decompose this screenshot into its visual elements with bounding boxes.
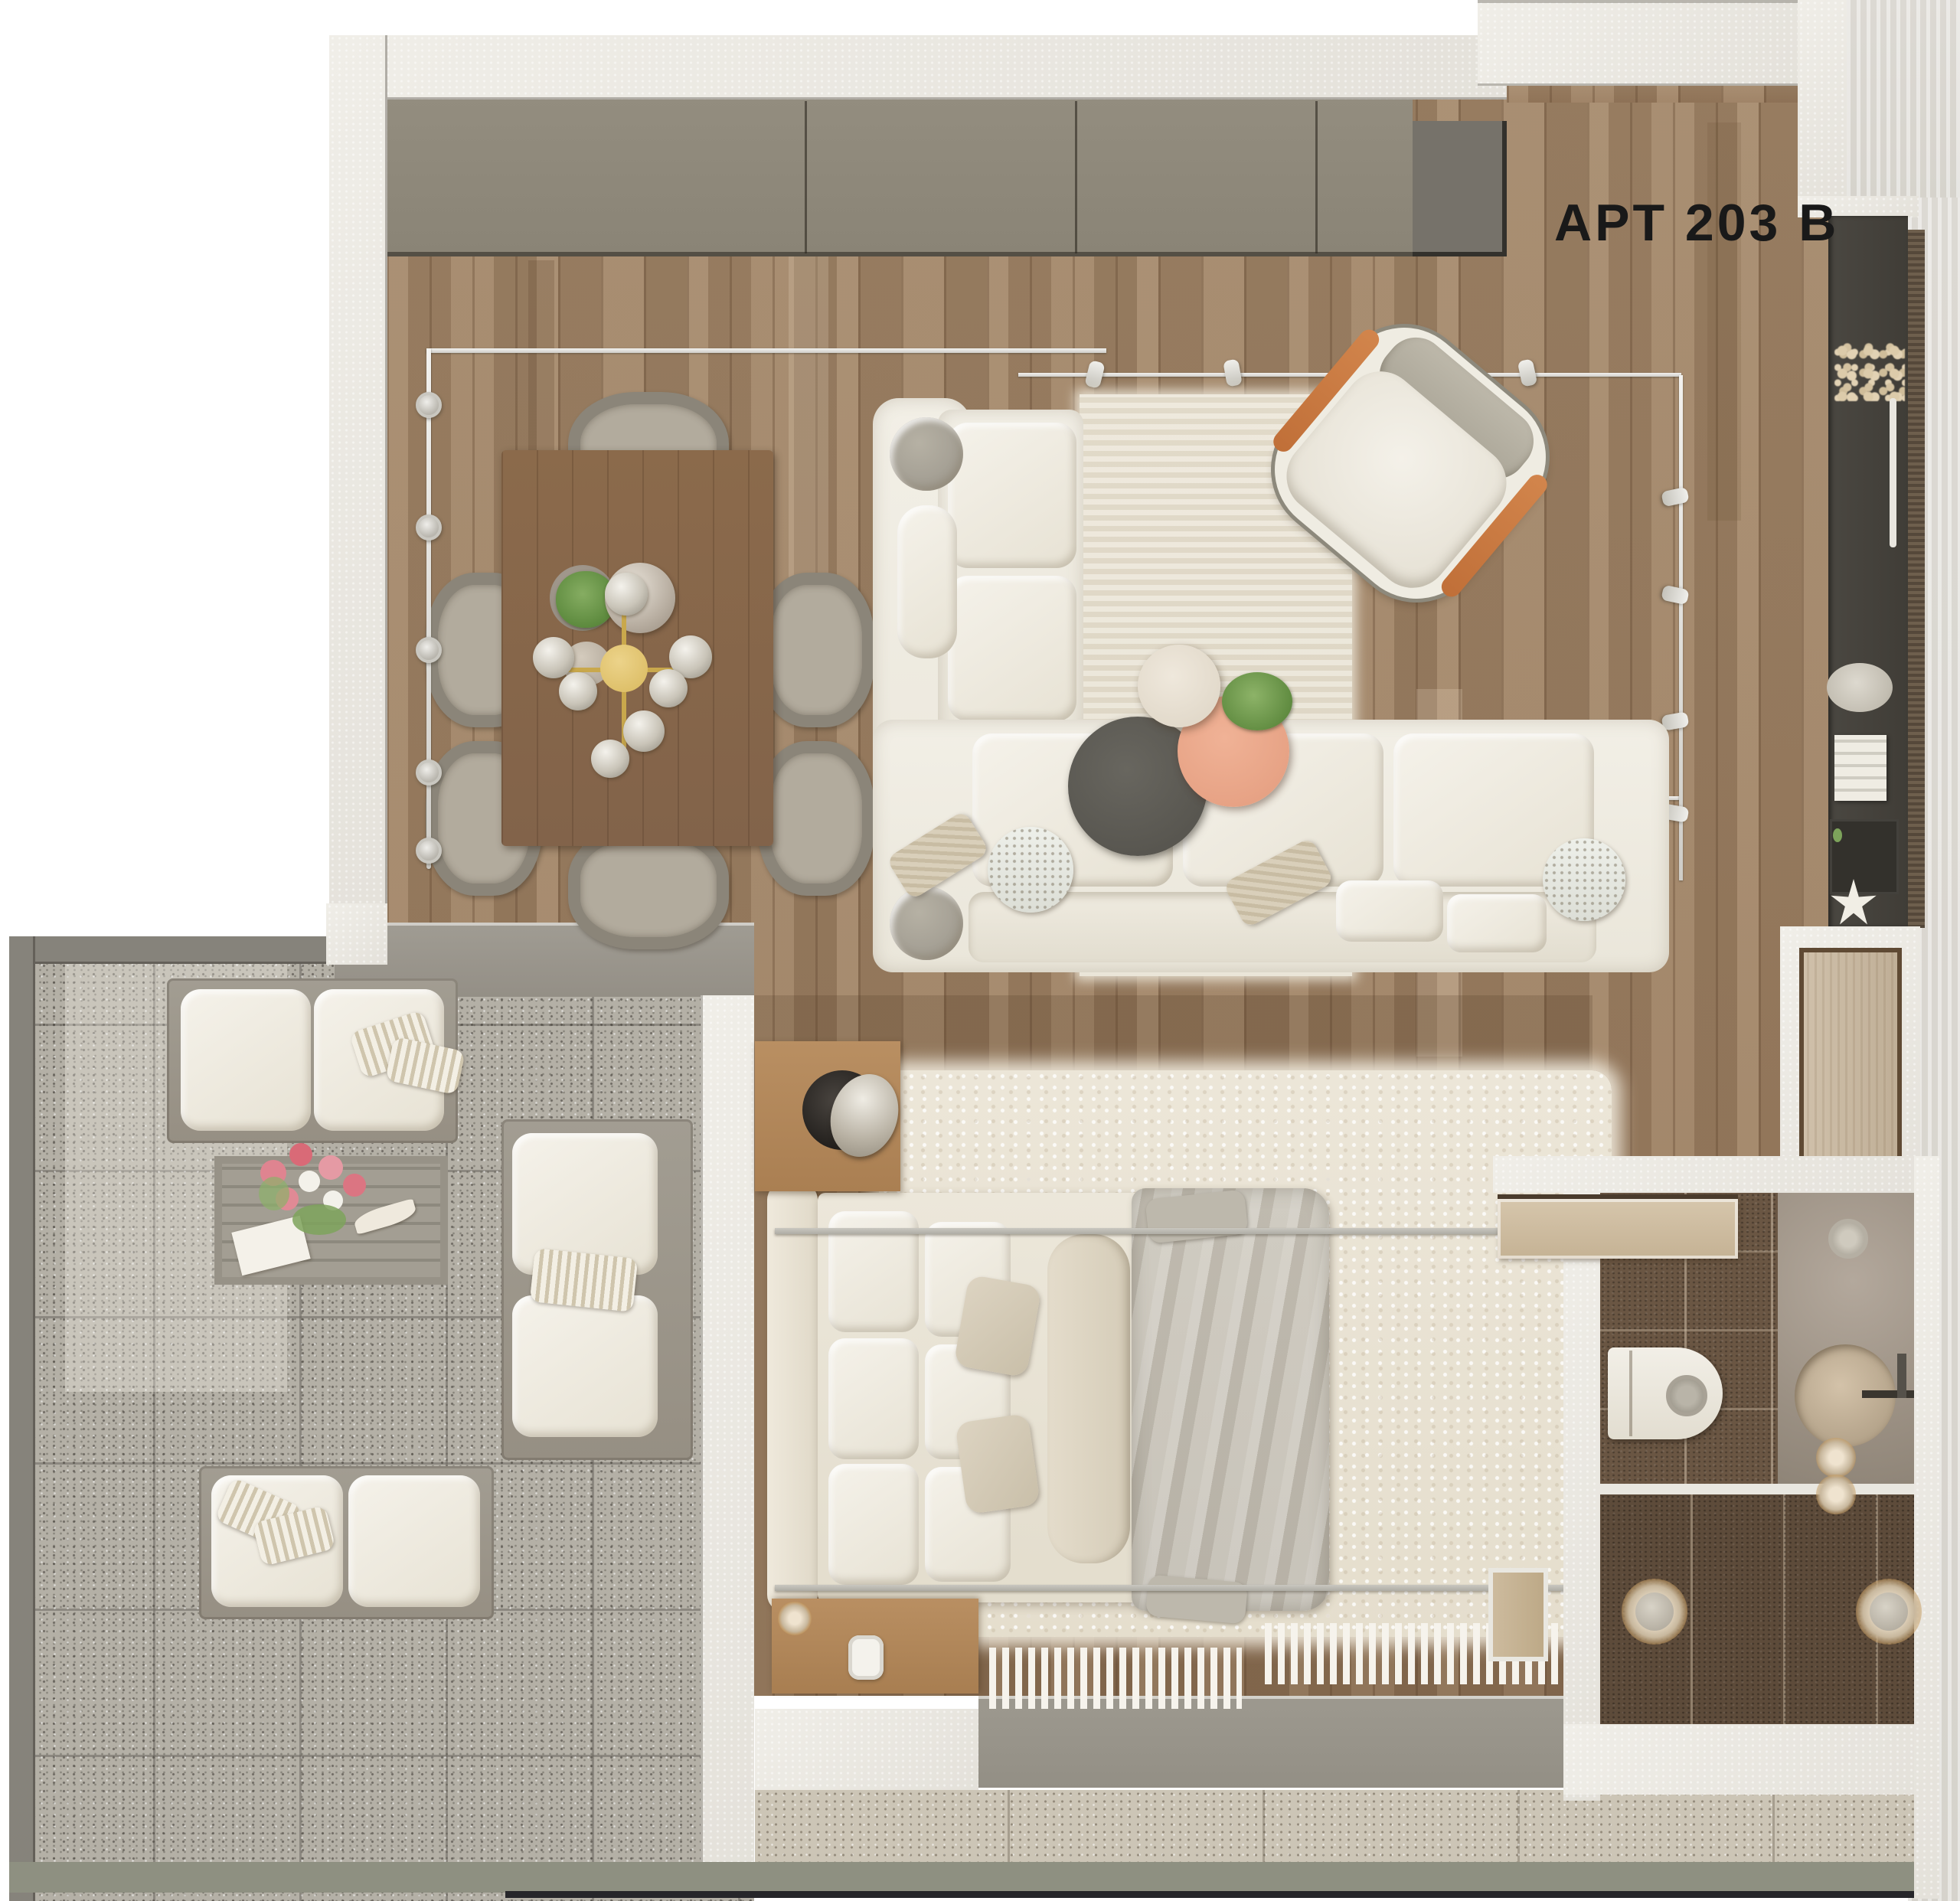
bottom-terrazzo-strip	[755, 1790, 1914, 1867]
wall-left	[329, 35, 387, 963]
bed-accent-pillow	[955, 1413, 1040, 1514]
coffee-table-cream	[1138, 645, 1220, 727]
fringe-mat-right	[1265, 1623, 1599, 1684]
sofa-pillow-dot	[1543, 838, 1625, 921]
console-fringe-edge	[1908, 230, 1925, 928]
bathroom-divider	[1600, 1484, 1914, 1494]
shower-floor-light-cap	[1635, 1592, 1674, 1631]
sofa-cushion	[948, 423, 1076, 568]
outdoor-cushion	[512, 1295, 658, 1437]
track-light	[416, 759, 442, 786]
track-light	[416, 514, 442, 541]
sofa-pillow-dot	[988, 827, 1073, 913]
chandelier-bulb	[649, 669, 688, 707]
sofa-armrest-cushion	[890, 417, 963, 491]
bathroom-wall-left	[1563, 1193, 1600, 1801]
bottom-band-green	[9, 1862, 1914, 1893]
wardrobe-door-divider	[1075, 101, 1077, 253]
mirror-light-ring	[1828, 1219, 1868, 1259]
bed-duvet	[1132, 1188, 1329, 1611]
closet-sliding-panel	[1799, 948, 1902, 1173]
wall-right-strip	[1914, 1156, 1939, 1899]
flower	[318, 1155, 343, 1180]
chandelier-hub	[600, 645, 648, 692]
canopy-rail-top	[775, 1228, 1606, 1234]
nightstand-glow	[778, 1602, 812, 1635]
outdoor-cushion	[181, 989, 311, 1131]
vanity-glow-light	[1816, 1438, 1856, 1478]
track-rail-left-vertical	[426, 348, 431, 869]
bottom-edge-line	[505, 1891, 1914, 1898]
striped-pillow	[530, 1248, 639, 1312]
bedroom-window-band	[978, 1696, 1570, 1788]
sprig-green	[1833, 828, 1842, 842]
bed-accent-pillow	[953, 1275, 1041, 1378]
wall-entry-top	[1478, 0, 1798, 86]
chandelier	[550, 596, 703, 764]
track-light	[416, 392, 442, 418]
bed-pillow	[828, 1338, 919, 1459]
outdoor-sofa-top	[167, 978, 458, 1143]
outdoor-sofa-bottom	[199, 1466, 494, 1619]
console-plate	[1827, 663, 1893, 712]
duvet-corner-pillow	[1145, 1574, 1248, 1624]
wall-entry-right	[1798, 0, 1847, 198]
bathroom-wall-bottom	[1563, 1724, 1914, 1795]
leaves	[259, 1177, 289, 1210]
floor-plank	[1707, 122, 1741, 521]
balcony-corner-block	[326, 903, 387, 965]
vanity-glow-light	[1816, 1475, 1856, 1514]
canopy-rail-bottom	[775, 1585, 1606, 1591]
flower	[299, 1171, 320, 1192]
outside-right-upper	[1847, 0, 1960, 198]
table-plant	[1222, 672, 1292, 730]
switch-pill	[848, 1635, 884, 1680]
bed-pillow	[828, 1464, 919, 1585]
dining-chair-right-1	[758, 573, 874, 727]
flower	[289, 1143, 312, 1166]
flower-bouquet	[253, 1137, 390, 1252]
leaves	[292, 1204, 346, 1235]
flower	[343, 1174, 366, 1197]
bed-bolster	[1047, 1234, 1130, 1563]
track-rail-left-horizontal	[426, 348, 1106, 353]
wardrobe-door-divider	[1315, 101, 1318, 253]
track-light	[416, 637, 442, 663]
wall-bedroom-balcony	[701, 995, 754, 1883]
entry-cabinet	[1413, 121, 1507, 256]
chandelier-bulb	[605, 573, 648, 616]
faucet-handle	[1897, 1354, 1906, 1398]
console-shelf-line	[1890, 398, 1896, 547]
wardrobe-door-divider	[805, 101, 807, 253]
balcony-railing-left	[9, 936, 35, 1901]
outdoor-cushion	[348, 1475, 480, 1607]
shower-floor-light-cap	[1870, 1592, 1908, 1631]
bottom-wall-block	[755, 1709, 978, 1790]
bathroom-sliding-door	[1498, 1199, 1738, 1259]
chandelier-bulb	[533, 637, 574, 678]
bedroom-door-panel	[1493, 1573, 1543, 1657]
toilet-flush-button	[1666, 1375, 1707, 1416]
fringe-mat-left	[989, 1648, 1242, 1709]
toilet-tank-line	[1629, 1351, 1632, 1436]
wardrobe-top-run	[387, 98, 1413, 256]
chandelier-bulb	[623, 710, 665, 752]
floor-plan: APT 203 B	[0, 0, 1960, 1901]
sofa-pillow	[1336, 880, 1443, 942]
dried-flowers	[1834, 341, 1905, 401]
track-light	[416, 838, 442, 864]
chandelier-bulb	[559, 672, 597, 710]
bed-headboard	[767, 1183, 818, 1612]
track-rail-right-vertical	[1679, 375, 1683, 880]
chandelier-bulb	[591, 740, 629, 778]
balcony-railing-top	[9, 936, 335, 964]
outdoor-sofa-right	[501, 1119, 693, 1460]
wall-top	[329, 35, 1507, 100]
wood-floor-entry	[1507, 84, 1798, 103]
apartment-label: APT 203 B	[1554, 193, 1839, 253]
console-book-stack	[1834, 735, 1886, 801]
sofa-armrest-cushion	[890, 887, 963, 960]
bathroom-wall-top	[1493, 1156, 1939, 1193]
dining-chair-right-2	[758, 741, 874, 896]
sofa-pillow	[1447, 894, 1547, 952]
sofa-cushion	[948, 576, 1076, 721]
sofa-pillow	[897, 505, 957, 658]
